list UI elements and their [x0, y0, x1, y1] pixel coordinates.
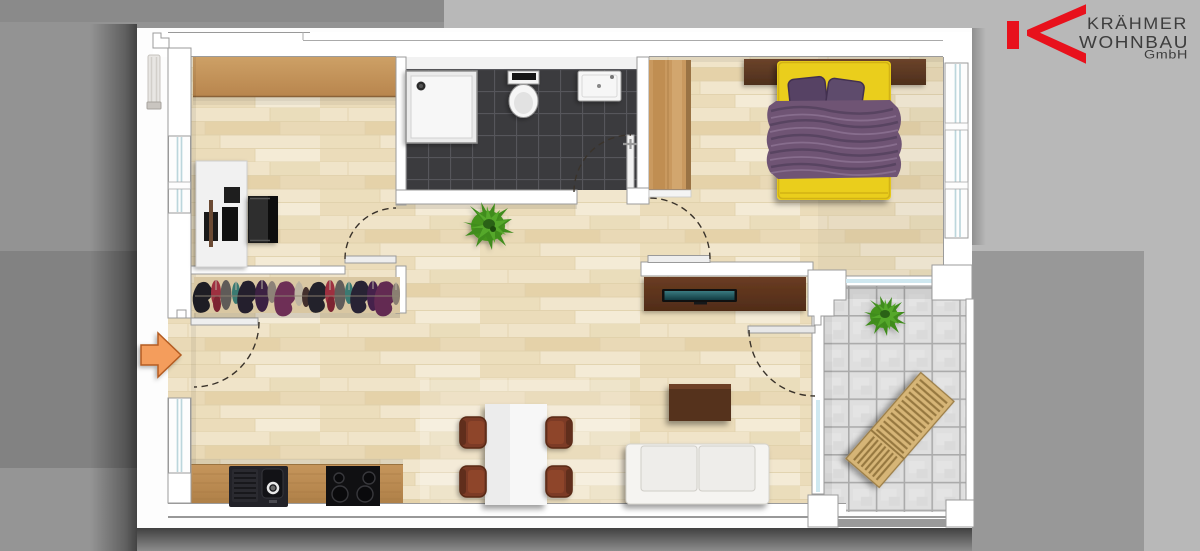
svg-text:KRÄHMER: KRÄHMER [1087, 14, 1188, 33]
svg-text:GmbH: GmbH [1144, 50, 1188, 62]
